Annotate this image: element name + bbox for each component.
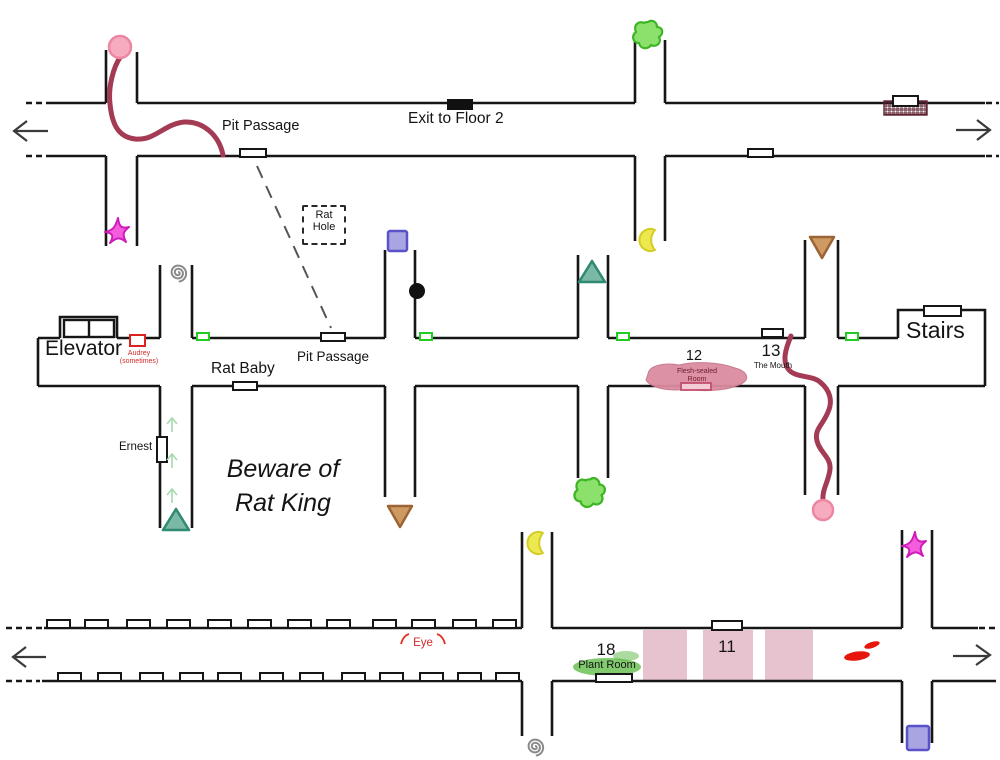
magenta-star-marker	[105, 218, 129, 243]
door-marker	[420, 673, 443, 681]
the-mouth-label: The Mouth	[754, 362, 792, 370]
elevator-doors-icon	[64, 320, 114, 337]
pink-circle-marker	[109, 36, 131, 58]
beware-rat-king-label: Beware of	[227, 456, 340, 482]
flesh-sealed-room-label2: Room	[688, 376, 707, 383]
teal-triangle-marker	[579, 261, 605, 282]
floor-map: Pit Passage Exit to Floor 2 Rat Hole Ele…	[0, 0, 1000, 760]
door-marker	[180, 673, 203, 681]
pit-passage-mid-label: Pit Passage	[297, 350, 369, 364]
door-marker	[712, 621, 742, 630]
arrow-right-icon	[956, 120, 990, 140]
flesh-sealed-room-label: Flesh-sealed	[677, 368, 717, 375]
beware-rat-king-label2: Rat King	[235, 490, 331, 516]
exit-floor2-label: Exit to Floor 2	[408, 111, 504, 127]
green-door-marker	[420, 333, 432, 340]
door-marker	[748, 149, 773, 157]
arrow-left-icon	[14, 121, 48, 141]
door-marker	[288, 620, 311, 628]
door-marker	[412, 620, 435, 628]
wall-end-dashes	[6, 103, 999, 681]
door-marker	[321, 333, 345, 341]
door-marker	[208, 620, 231, 628]
door-marker	[240, 149, 266, 157]
door-marker	[167, 620, 190, 628]
door-marker	[762, 329, 783, 337]
door-marker	[140, 673, 163, 681]
pink-door-marker	[681, 383, 711, 390]
vent-hatch-marker	[884, 96, 927, 115]
yellow-crescent-marker	[527, 532, 543, 554]
purple-square-marker	[907, 726, 929, 750]
green-door-marker	[846, 333, 858, 340]
yellow-crescent-marker	[639, 229, 655, 251]
door-marker	[300, 673, 323, 681]
door-marker	[58, 673, 81, 681]
black-dot-marker	[409, 283, 425, 299]
exit-floor2-marker	[447, 99, 473, 110]
audrey-sometimes-label: (sometimes)	[120, 358, 159, 365]
pit-passage-top-label: Pit Passage	[222, 119, 299, 134]
door-marker	[233, 382, 257, 390]
plant-room-label: Plant Room	[578, 660, 635, 672]
door-marker	[373, 620, 396, 628]
route-line-pit-passage	[110, 56, 223, 155]
door-marker	[458, 673, 481, 681]
room-12-label: 12	[686, 349, 702, 364]
door-marker	[327, 620, 350, 628]
brown-triangle-marker	[388, 506, 412, 527]
green-door-marker	[617, 333, 629, 340]
door-marker	[157, 437, 167, 462]
green-direction-arrows	[167, 418, 177, 503]
pit-passage-link-dashed-line	[257, 166, 331, 328]
purple-square-marker	[388, 231, 407, 251]
eye-label: Eye	[413, 637, 433, 649]
ernest-label: Ernest	[119, 441, 152, 453]
red-door-marker	[130, 335, 145, 346]
stairs-label: Stairs	[906, 318, 965, 342]
door-marker	[47, 620, 70, 628]
door-marker	[260, 673, 283, 681]
spiral-marker	[528, 739, 544, 756]
room-13-label: 13	[762, 342, 781, 360]
elevator-label: Elevator	[45, 338, 122, 360]
rat-baby-label: Rat Baby	[211, 361, 275, 377]
magenta-star-marker	[902, 532, 926, 557]
red-scribble-marker	[844, 640, 881, 663]
door-marker	[924, 306, 961, 316]
door-marker	[248, 620, 271, 628]
door-marker	[453, 620, 476, 628]
door-marker	[342, 673, 365, 681]
door-marker	[496, 673, 519, 681]
green-door-marker	[197, 333, 209, 340]
corridor-walls	[6, 40, 999, 743]
door-marker	[380, 673, 403, 681]
door-marker	[127, 620, 150, 628]
arrow-right-icon	[953, 645, 990, 665]
room-18-label: 18	[597, 641, 616, 659]
green-splat-marker	[633, 21, 662, 48]
door-marker	[98, 673, 121, 681]
pink-circle-marker	[813, 500, 833, 520]
audrey-label: Audrey	[128, 350, 150, 357]
brown-triangle-marker	[810, 237, 834, 258]
door-marker	[218, 673, 241, 681]
spiral-marker	[171, 265, 187, 282]
rat-hole-label: Rat Hole	[302, 205, 346, 245]
green-splat-marker	[574, 478, 604, 507]
door-marker	[85, 620, 108, 628]
door-marker	[596, 674, 632, 682]
door-marker	[493, 620, 516, 628]
arrow-left-icon	[13, 647, 46, 667]
teal-triangle-marker	[163, 509, 189, 530]
room-11-label: 11	[718, 638, 736, 656]
